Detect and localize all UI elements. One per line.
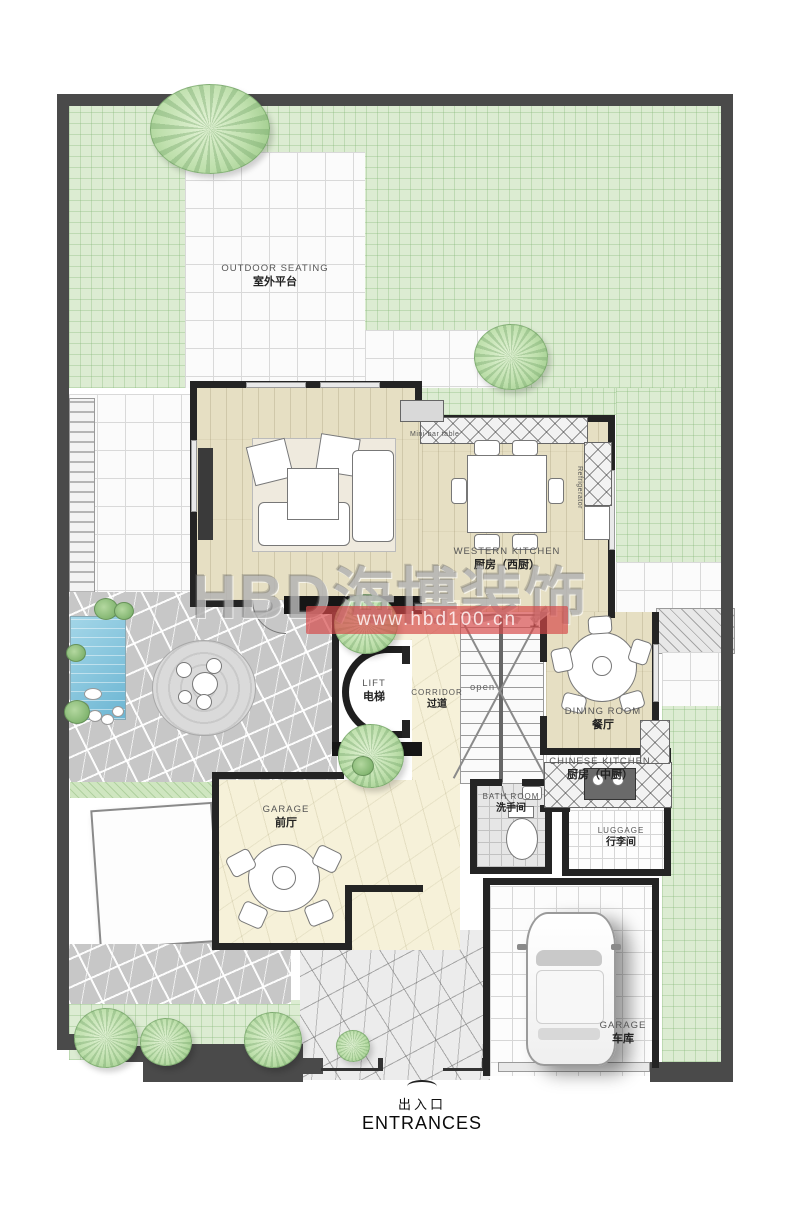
entrance-symbol-icon — [407, 1080, 437, 1093]
wall-garage-top — [483, 878, 659, 885]
entrance-label-zh: 出入口 — [362, 1094, 482, 1113]
bush — [64, 700, 90, 724]
tree-top — [150, 84, 270, 174]
tree-bottom-3 — [244, 1012, 302, 1068]
wall-hall-right — [345, 885, 352, 950]
label-stair-open: open — [470, 682, 495, 693]
wall-bath-bottom — [470, 867, 552, 874]
pool-rock — [101, 714, 114, 725]
car-windshield — [536, 950, 602, 966]
label-corridor: CORRIDOR 过道 — [411, 688, 463, 711]
dining-chair — [451, 478, 467, 504]
label-garage-en: GARAGE — [600, 1020, 647, 1032]
label-chinese-kitchen-zh: 厨房（中厨） — [549, 768, 651, 782]
label-outdoor-seating: OUTDOOR SEATING 室外平台 — [221, 263, 328, 290]
site-wall-bottom-right — [650, 1062, 733, 1082]
wall-hall-top — [212, 772, 344, 779]
lift-jamb-bottom — [402, 720, 410, 738]
wall-bath-top-left — [470, 779, 502, 786]
tv-cabinet — [198, 448, 213, 540]
window-living-top-2 — [320, 382, 380, 388]
kitchen-dining-table — [467, 455, 547, 533]
wall-luggage-bottom — [562, 869, 671, 876]
label-western-kitchen-en: WESTERN KITCHEN — [454, 546, 561, 558]
tree-right — [474, 324, 548, 390]
tree-bottom-2 — [140, 1018, 192, 1066]
wall-dining-left-upper — [540, 612, 547, 662]
tall-cabinet — [584, 442, 612, 506]
tree-entrance — [336, 1030, 370, 1062]
site-wall-right — [721, 94, 733, 1082]
wall-garage-right — [652, 878, 659, 1068]
lawn-top-patch — [416, 388, 616, 415]
label-western-kitchen: WESTERN KITCHEN 厨房（西厨） — [454, 546, 561, 573]
label-lift-zh: 电梯 — [362, 690, 386, 704]
bush — [66, 644, 86, 662]
car-rear-window — [538, 1028, 600, 1040]
lower-left-paving — [69, 944, 291, 1004]
tree-bottom-1 — [74, 1008, 138, 1068]
wall-hall-left — [212, 772, 219, 950]
bush — [114, 602, 134, 620]
label-chinese-kitchen: CHINESE KITCHEN 厨房（中厨） — [549, 756, 651, 783]
label-lift: LIFT 电梯 — [362, 678, 386, 705]
pool-rock — [112, 706, 124, 717]
wall-hall-right-top — [345, 885, 423, 892]
entrance-gate-line-left — [321, 1068, 381, 1071]
wall-living-bottom — [190, 600, 252, 607]
site-wall-step-4 — [297, 1058, 323, 1074]
window-dining-right — [653, 644, 659, 702]
car-mirror-right — [611, 944, 621, 950]
wall-hall-bottom — [212, 943, 352, 950]
label-front-hall-zh: 前厅 — [263, 816, 310, 830]
label-front-hall: GARAGE 前厅 — [263, 804, 310, 831]
label-outdoor-seating-zh: 室外平台 — [221, 275, 328, 289]
patio-chair — [176, 662, 192, 678]
label-lift-en: LIFT — [362, 678, 386, 690]
patio-chair — [206, 658, 222, 674]
label-bathroom: BATH ROOM 洗手间 — [483, 792, 540, 815]
label-bathroom-zh: 洗手间 — [483, 802, 540, 815]
label-luggage-en: LUGGAGE — [598, 826, 645, 836]
sofa-right — [352, 450, 394, 542]
patio-chair — [178, 690, 192, 704]
label-luggage: LUGGAGE 行李间 — [598, 826, 645, 849]
label-garage: GARAGE 车库 — [600, 1020, 647, 1047]
tree-courtyard-upper — [334, 594, 398, 654]
wall-bath-left — [470, 779, 477, 874]
label-corridor-zh: 过道 — [411, 698, 463, 711]
patio-table — [192, 672, 218, 696]
label-corridor-en: CORRIDOR — [411, 688, 463, 698]
refrigerator — [584, 506, 610, 540]
label-dining-room-zh: 餐厅 — [565, 718, 641, 732]
pool-lounger — [84, 688, 102, 700]
label-stair-up: 上 — [530, 616, 539, 629]
label-outdoor-seating-en: OUTDOOR SEATING — [221, 263, 328, 275]
wall-living-top — [190, 381, 422, 388]
gate-post-left — [378, 1058, 383, 1071]
tree-courtyard-lower — [338, 724, 404, 788]
left-louver-fence — [69, 398, 95, 604]
car-mirror-left — [517, 944, 527, 950]
pool-rock — [88, 710, 102, 722]
bush — [352, 756, 374, 776]
dining-chair — [548, 478, 564, 504]
label-garage-zh: 车库 — [600, 1032, 647, 1046]
window-living-top-1 — [246, 382, 306, 388]
lift-jamb-top — [402, 646, 410, 664]
dining-chair — [587, 615, 612, 635]
driveway-flagstones — [300, 930, 490, 1080]
label-refrigerator: Refrigerator — [576, 466, 583, 509]
toilet — [506, 818, 538, 860]
mini-bar-table — [400, 400, 444, 422]
label-dining-room-en: DINING ROOM — [565, 706, 641, 718]
stair-flight-right — [502, 614, 544, 784]
dining-chair — [474, 440, 500, 456]
dining-table-center — [592, 656, 612, 676]
car-roof — [536, 970, 604, 1024]
label-bathroom-en: BATH ROOM — [483, 792, 540, 802]
tilted-deck-pad — [90, 802, 221, 950]
label-luggage-zh: 行李间 — [598, 836, 645, 849]
label-dining-room: DINING ROOM 餐厅 — [565, 706, 641, 733]
entrance-label-en: ENTRANCES — [362, 1113, 482, 1134]
wall-luggage-left — [562, 808, 569, 876]
site-wall-left — [57, 94, 69, 1046]
window-living-left — [191, 440, 197, 512]
label-mini-bar: Mini-bar table — [410, 431, 459, 438]
label-front-hall-en: GARAGE — [263, 804, 310, 816]
floor-plan: OUTDOOR SEATING 室外平台 WESTERN KITCHEN 厨房（… — [0, 0, 800, 1209]
entrance-gate-line-right — [443, 1068, 487, 1071]
right-terrace-pad — [616, 562, 721, 612]
entrance-label: 出入口 ENTRANCES — [362, 1080, 482, 1134]
right-small-pad — [662, 652, 721, 706]
wall-garage-left — [483, 878, 490, 1076]
patio-chair — [196, 694, 212, 710]
label-western-kitchen-zh: 厨房（西厨） — [454, 558, 561, 572]
dining-chair — [512, 440, 538, 456]
hall-table-center — [272, 866, 296, 890]
label-chinese-kitchen-en: CHINESE KITCHEN — [549, 756, 651, 768]
coffee-table — [287, 468, 339, 520]
